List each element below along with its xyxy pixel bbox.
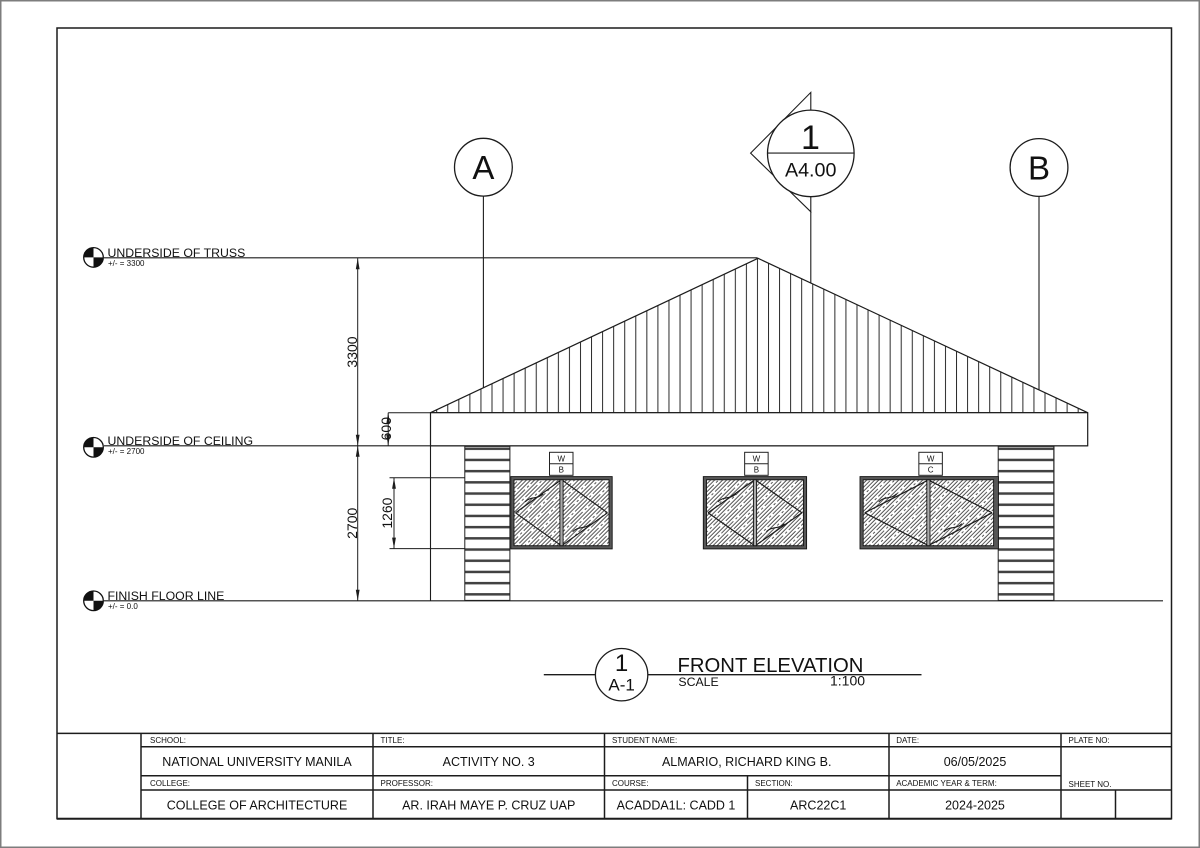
svg-text:1: 1: [615, 650, 628, 677]
svg-text:06/05/2025: 06/05/2025: [944, 755, 1007, 769]
svg-text:ACADDA1L: CADD 1: ACADDA1L: CADD 1: [617, 798, 736, 812]
svg-text:1:100: 1:100: [830, 673, 865, 689]
svg-text:W: W: [927, 455, 935, 464]
svg-text:ACADEMIC YEAR & TERM:: ACADEMIC YEAR & TERM:: [896, 779, 997, 788]
svg-text:B: B: [754, 466, 759, 475]
svg-text:ACTIVITY NO. 3: ACTIVITY NO. 3: [443, 755, 535, 769]
svg-text:NATIONAL UNIVERSITY MANILA: NATIONAL UNIVERSITY MANILA: [162, 755, 352, 769]
svg-text:A: A: [472, 149, 494, 186]
svg-text:SHEET NO.: SHEET NO.: [1069, 780, 1112, 789]
svg-text:A4.00: A4.00: [785, 159, 836, 181]
svg-text:AR. IRAH MAYE P. CRUZ UAP: AR. IRAH MAYE P. CRUZ UAP: [402, 798, 575, 812]
svg-text:COLLEGE:: COLLEGE:: [150, 779, 190, 788]
svg-text:TITLE:: TITLE:: [381, 736, 405, 745]
svg-text:UNDERSIDE OF TRUSS: UNDERSIDE OF TRUSS: [108, 246, 246, 260]
svg-text:ALMARIO, RICHARD KING B.: ALMARIO, RICHARD KING B.: [662, 755, 831, 769]
svg-text:COURSE:: COURSE:: [612, 779, 648, 788]
svg-text:PLATE NO:: PLATE NO:: [1069, 736, 1110, 745]
svg-text:FINISH FLOOR LINE: FINISH FLOOR LINE: [108, 589, 225, 603]
svg-text:ARC22C1: ARC22C1: [790, 798, 846, 812]
svg-text:1260: 1260: [379, 497, 395, 528]
svg-text:W: W: [557, 455, 565, 464]
svg-text:+/- = 3300: +/- = 3300: [108, 259, 145, 268]
svg-text:3300: 3300: [344, 336, 360, 367]
svg-text:SECTION:: SECTION:: [755, 779, 793, 788]
svg-text:2700: 2700: [344, 508, 360, 539]
svg-text:A-1: A-1: [608, 676, 634, 695]
svg-text:B: B: [1028, 149, 1050, 186]
svg-text:SCHOOL:: SCHOOL:: [150, 736, 186, 745]
svg-text:2024-2025: 2024-2025: [945, 798, 1005, 812]
svg-text:600: 600: [378, 417, 394, 441]
svg-text:C: C: [928, 466, 934, 475]
svg-text:DATE:: DATE:: [896, 736, 919, 745]
svg-text:W: W: [753, 455, 761, 464]
svg-text:UNDERSIDE OF CEILING: UNDERSIDE OF CEILING: [108, 434, 254, 448]
svg-text:PROFESSOR:: PROFESSOR:: [381, 779, 433, 788]
svg-text:SCALE: SCALE: [678, 675, 718, 689]
svg-text:1: 1: [801, 119, 820, 157]
svg-text:B: B: [559, 466, 564, 475]
svg-text:STUDENT NAME:: STUDENT NAME:: [612, 736, 677, 745]
svg-text:COLLEGE OF ARCHITECTURE: COLLEGE OF ARCHITECTURE: [167, 798, 348, 812]
svg-text:+/- = 2700: +/- = 2700: [108, 447, 145, 456]
svg-text:+/- = 0.0: +/- = 0.0: [108, 602, 138, 611]
